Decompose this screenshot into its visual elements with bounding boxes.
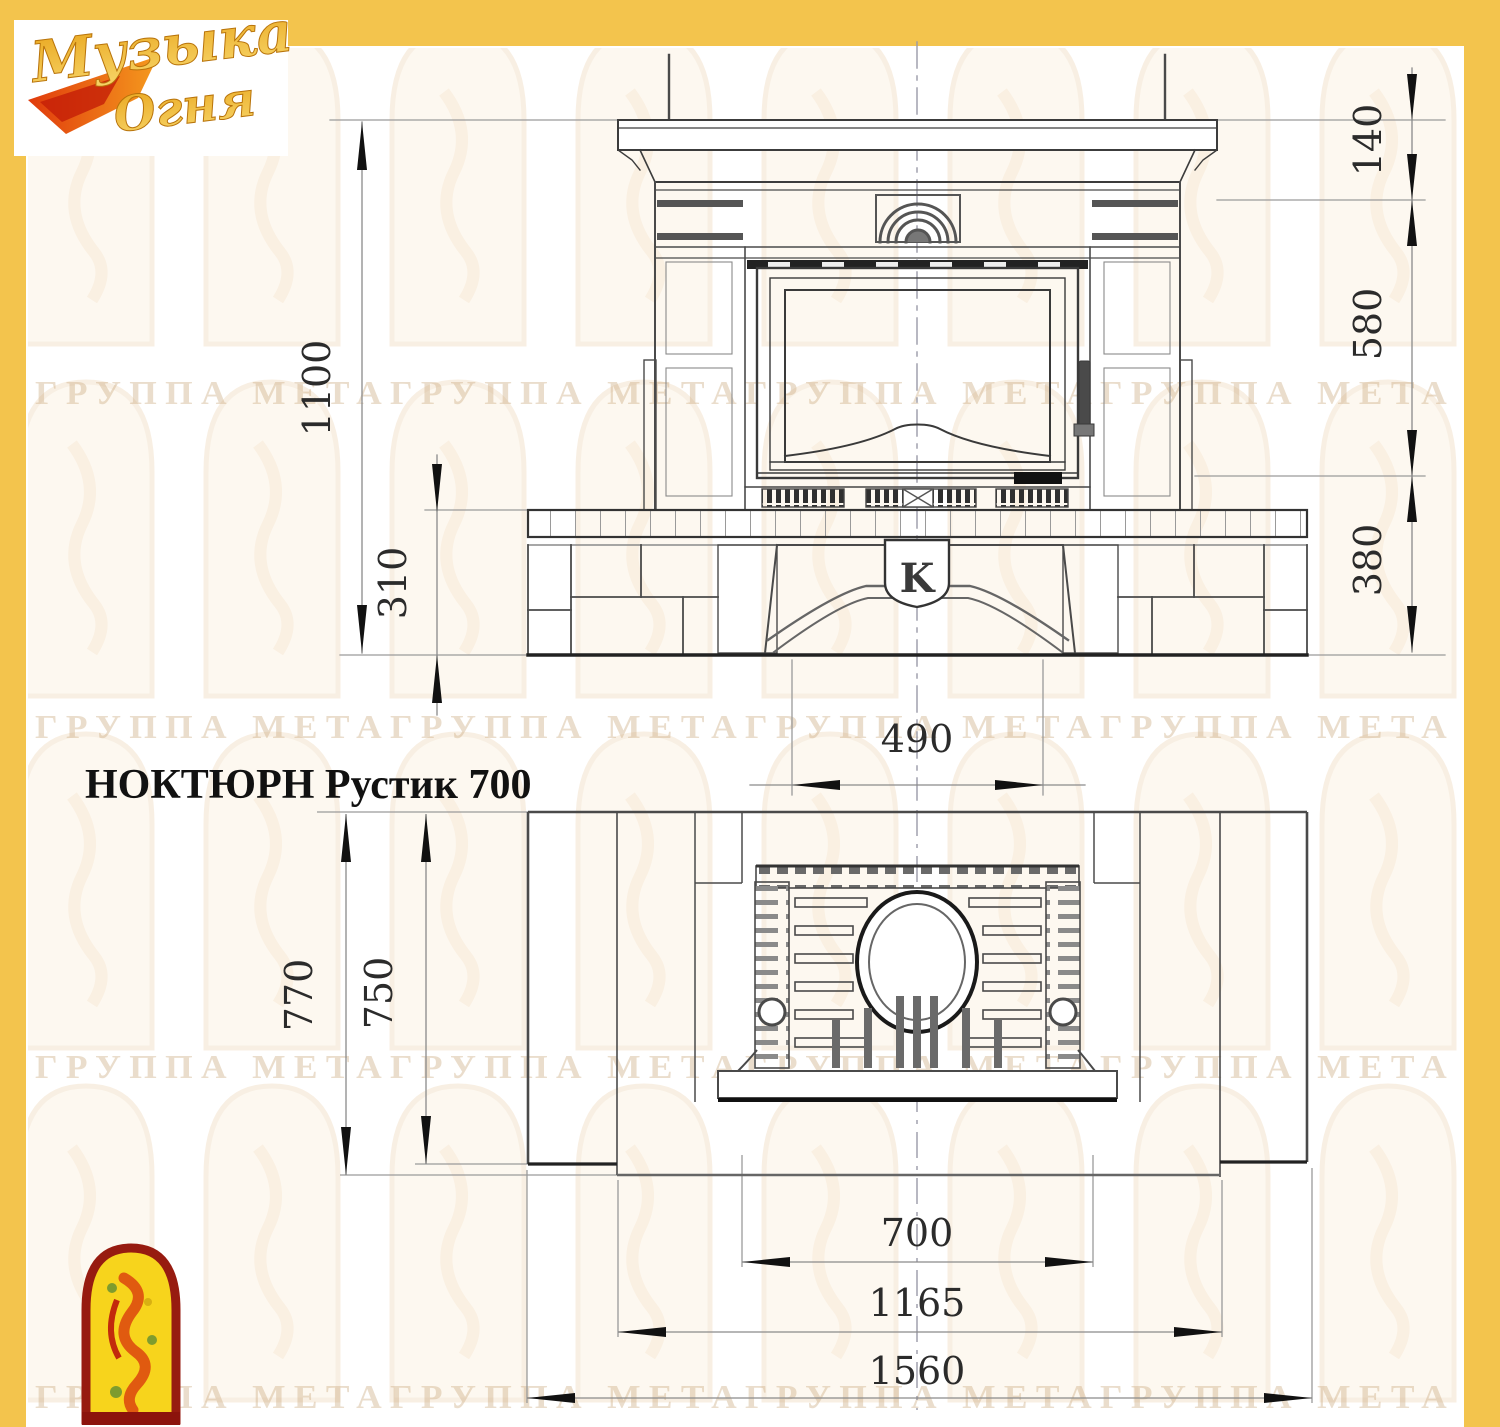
meta-logo-dot (107, 1283, 117, 1293)
watermark: ГРУППА МЕТАГРУППА МЕТАГРУППА МЕТАГРУППА … (28, 48, 1464, 1416)
dim-label-1100: 1100 (295, 340, 339, 437)
drawing-canvas: ГРУППА МЕТАГРУППА МЕТАГРУППА МЕТАГРУППА … (0, 0, 1500, 1427)
dim-label-580: 580 (1346, 288, 1390, 361)
door-handle (1079, 361, 1090, 428)
border-left (0, 46, 26, 1427)
dim-label-140: 140 (1346, 104, 1390, 177)
dim-label-310: 310 (371, 547, 415, 620)
meta-logo-dot (144, 1298, 152, 1306)
meta-logo (82, 1248, 180, 1425)
meta-logo-base (82, 1412, 180, 1425)
brand-logo: Музыка Огня (14, 0, 296, 156)
watermark-text-row: ГРУППА МЕТАГРУППА МЕТАГРУППА МЕТАГРУППА … (35, 709, 1455, 746)
dim-label-1165: 1165 (869, 1281, 966, 1325)
dim-label-700: 700 (881, 1211, 954, 1255)
dim-label-1560: 1560 (869, 1349, 966, 1393)
insert-right-boss (1050, 999, 1076, 1025)
air-grille (745, 487, 1090, 507)
dim-label-380: 380 (1346, 524, 1390, 597)
dim-label-750: 750 (357, 957, 401, 1030)
k-medallion-letter: K (900, 555, 936, 602)
insert-left-boss (759, 999, 785, 1025)
drawing-page: ГРУППА МЕТАГРУППА МЕТАГРУППА МЕТАГРУППА … (0, 0, 1500, 1427)
dim-label-490: 490 (881, 717, 954, 761)
meta-logo-dot (110, 1386, 122, 1398)
page-title: НОКТЮРН Рустик 700 (85, 762, 531, 808)
dim-label-770: 770 (277, 959, 321, 1032)
ash-lip (1014, 472, 1062, 484)
firebox-insert-plan (718, 866, 1117, 1100)
door-handle-pivot (1074, 424, 1094, 436)
meta-logo-dot (147, 1335, 157, 1345)
border-right (1464, 46, 1500, 1427)
